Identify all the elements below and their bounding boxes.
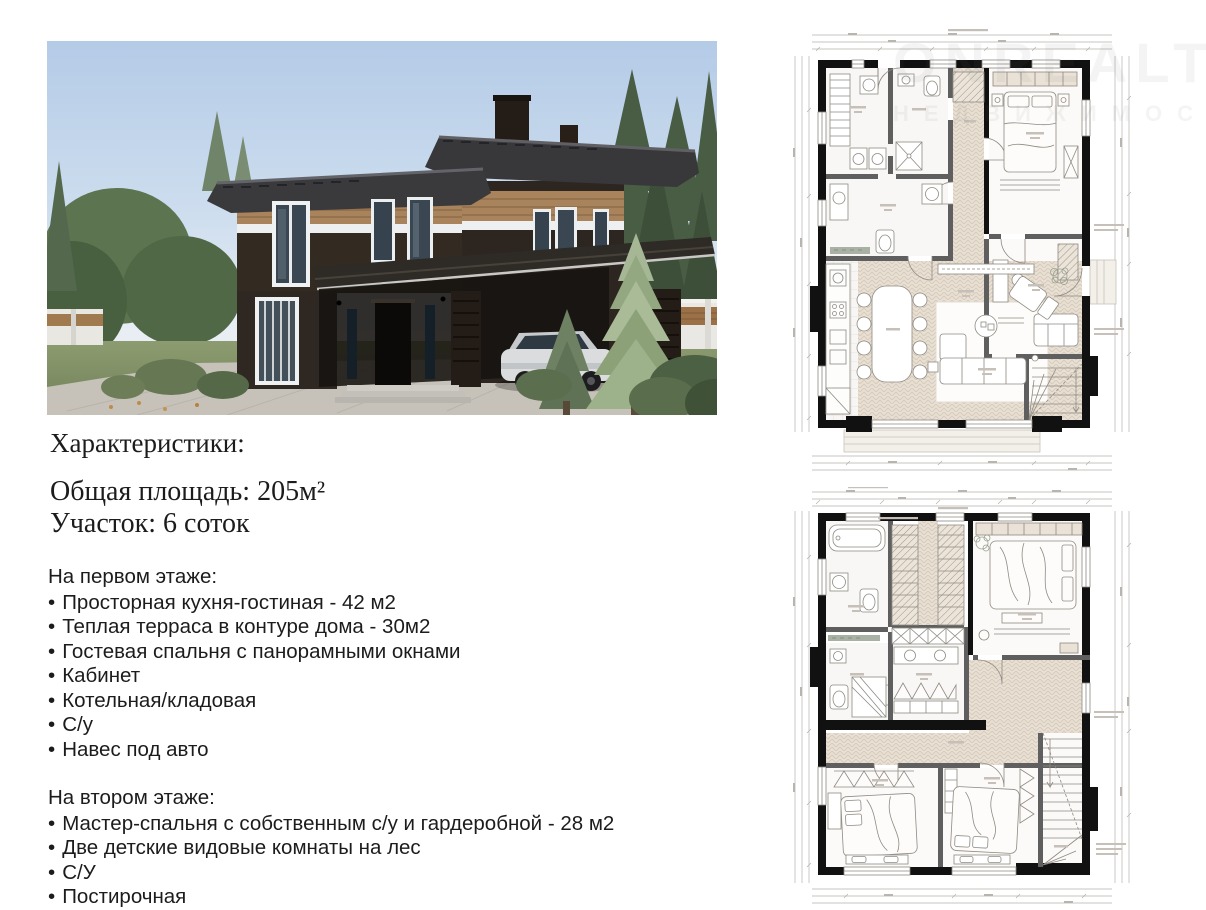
first-floor-section: На первом этаже: •Просторная кухня-гости… — [48, 565, 461, 762]
floor-plan-first — [788, 28, 1136, 477]
feature-text: Кабинет — [62, 664, 140, 687]
feature-text: Постирочная — [62, 885, 186, 908]
feature-text: Мастер-спальня с собственным с/у и гарде… — [62, 812, 614, 835]
listing-page: ONREALT НЕДВИЖИМОСТЬ — [0, 0, 1206, 910]
bullet-icon: • — [48, 738, 55, 761]
feature-item: •Котельная/кладовая — [48, 689, 461, 714]
kitchen — [826, 264, 850, 414]
feature-item: •Теплая терраса в контуре дома - 30м2 — [48, 615, 461, 640]
feature-item: •Просторная кухня-гостиная - 42 м2 — [48, 591, 461, 616]
bullet-icon: • — [48, 615, 55, 638]
bullet-icon: • — [48, 713, 55, 736]
second-floor-heading: На втором этаже: — [48, 786, 614, 811]
feature-item: •С/У — [48, 861, 614, 886]
feature-item: •С/у — [48, 713, 461, 738]
house-photo-art — [47, 41, 717, 415]
feature-text: Котельная/кладовая — [62, 689, 256, 712]
terrace-steps — [844, 430, 1040, 452]
house-photo — [47, 41, 717, 415]
fence-left — [47, 309, 103, 345]
first-floor-heading: На первом этаже: — [48, 565, 461, 590]
feature-text: Теплая терраса в контуре дома - 30м2 — [62, 615, 430, 638]
bullet-icon: • — [48, 812, 55, 835]
feature-item: •Кабинет — [48, 664, 461, 689]
bullet-icon: • — [48, 885, 55, 908]
characteristics-title: Характеристики: — [50, 428, 245, 459]
outdoor-landing — [1090, 260, 1116, 304]
feature-item: •Гостевая спальня с панорамными окнами — [48, 640, 461, 665]
entrance-door — [375, 303, 411, 385]
feature-text: С/У — [62, 861, 96, 884]
feature-item: •Мастер-спальня с собственным с/у и гард… — [48, 812, 614, 837]
feature-item: •Две детские видовые комнаты на лес — [48, 836, 614, 861]
feature-item: •Постирочная — [48, 885, 614, 910]
total-area-text: Общая площадь: 205м² — [50, 476, 325, 508]
bullet-icon: • — [48, 861, 55, 884]
floor-plan-second — [788, 487, 1136, 910]
porch-steps — [335, 385, 471, 403]
bullet-icon: • — [48, 591, 55, 614]
carport-pier-left — [451, 291, 481, 387]
bullet-icon: • — [48, 689, 55, 712]
feature-text: С/у — [62, 713, 93, 736]
plot-size-text: Участок: 6 соток — [50, 508, 250, 540]
feature-text: Две детские видовые комнаты на лес — [62, 836, 421, 859]
feature-text: Гостевая спальня с панорамными окнами — [62, 640, 460, 663]
feature-text: Просторная кухня-гостиная - 42 м2 — [62, 591, 396, 614]
feature-text: Навес под авто — [62, 738, 208, 761]
feature-item: •Навес под авто — [48, 738, 461, 763]
entry-closet — [953, 72, 984, 102]
first-floor-window-left — [255, 297, 299, 385]
second-floor-section: На втором этаже: •Мастер-спальня с собст… — [48, 786, 614, 910]
bullet-icon: • — [48, 640, 55, 663]
bullet-icon: • — [48, 664, 55, 687]
bullet-icon: • — [48, 836, 55, 859]
